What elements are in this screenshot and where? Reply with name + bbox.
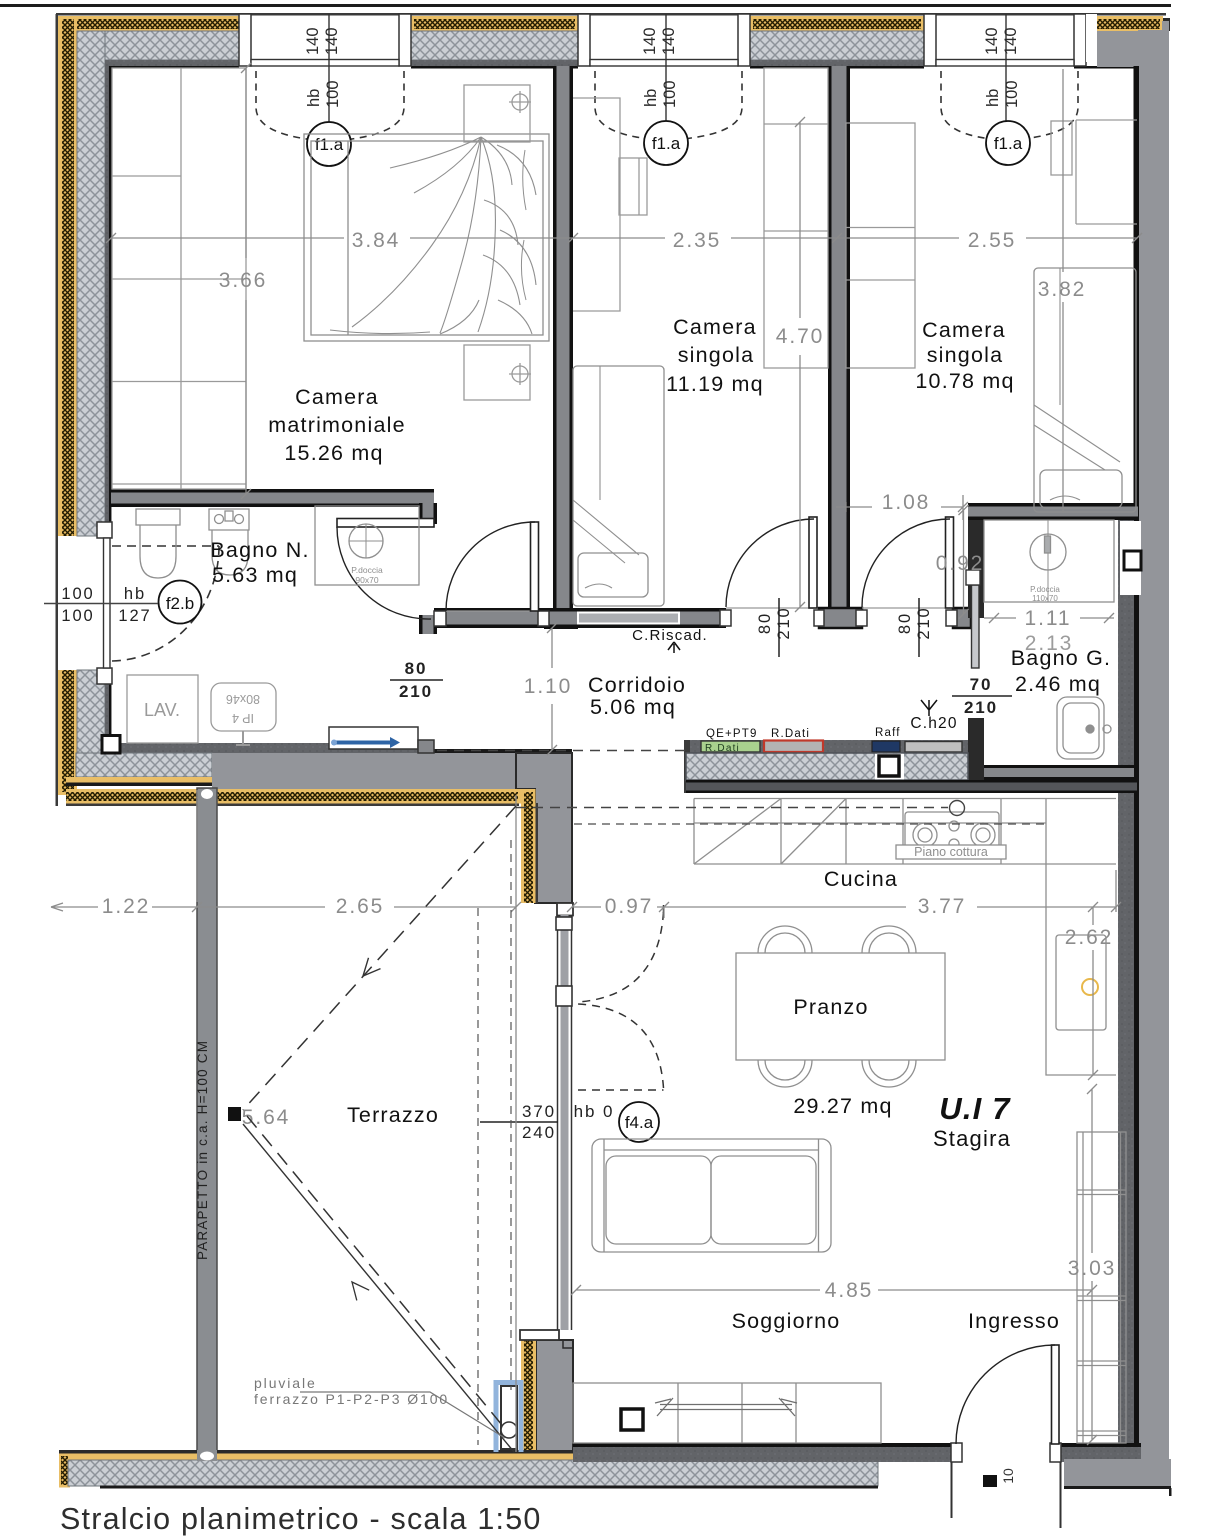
svg-text:1.22: 1.22 <box>102 895 150 918</box>
svg-text:140: 140 <box>983 27 1001 55</box>
svg-text:210: 210 <box>399 682 433 701</box>
svg-text:LAV.: LAV. <box>144 700 180 720</box>
svg-text:2.35: 2.35 <box>673 229 721 252</box>
svg-text:0.92: 0.92 <box>936 552 984 575</box>
svg-text:IP 4: IP 4 <box>232 711 254 725</box>
svg-text:PARAPETTO in c.a. H=100 CM: PARAPETTO in c.a. H=100 CM <box>195 1040 210 1260</box>
svg-text:singola: singola <box>927 343 1004 367</box>
svg-text:210: 210 <box>915 606 933 639</box>
svg-text:Raff: Raff <box>875 727 901 739</box>
svg-text:100: 100 <box>324 80 342 108</box>
svg-text:5.06 mq: 5.06 mq <box>590 695 676 719</box>
svg-text:f1.a: f1.a <box>652 134 681 153</box>
svg-text:240: 240 <box>522 1123 556 1142</box>
svg-text:100: 100 <box>61 585 94 603</box>
svg-text:127: 127 <box>118 607 151 625</box>
svg-text:3.03: 3.03 <box>1068 1257 1116 1280</box>
svg-text:f2.b: f2.b <box>166 594 194 613</box>
svg-text:hb: hb <box>642 89 660 107</box>
svg-text:80: 80 <box>896 612 914 634</box>
svg-text:2.65: 2.65 <box>336 895 384 918</box>
svg-text:15.26 mq: 15.26 mq <box>284 441 383 465</box>
svg-text:3.77: 3.77 <box>918 895 966 918</box>
svg-text:210: 210 <box>775 606 793 639</box>
svg-text:Stralcio planimetrico - scala: Stralcio planimetrico - scala 1:50 <box>60 1502 542 1536</box>
svg-text:3.66: 3.66 <box>219 269 267 292</box>
svg-text:U.I 7: U.I 7 <box>939 1091 1011 1126</box>
svg-text:80x46: 80x46 <box>226 692 260 706</box>
svg-text:hb: hb <box>984 89 1002 107</box>
svg-text:3.82: 3.82 <box>1038 278 1086 301</box>
svg-text:140: 140 <box>323 27 341 55</box>
svg-text:Pranzo: Pranzo <box>793 995 868 1019</box>
svg-text:R.Dati: R.Dati <box>771 728 810 740</box>
svg-text:2.62: 2.62 <box>1065 926 1113 949</box>
svg-text:f1.a: f1.a <box>315 135 344 154</box>
svg-text:f1.a: f1.a <box>994 134 1023 153</box>
svg-text:110x70: 110x70 <box>1032 594 1058 603</box>
svg-text:11.19 mq: 11.19 mq <box>666 372 764 396</box>
svg-text:f4.a: f4.a <box>625 1113 654 1132</box>
svg-text:210: 210 <box>964 698 998 717</box>
svg-text:P.doccia: P.doccia <box>351 565 383 575</box>
svg-text:4.70: 4.70 <box>776 325 824 348</box>
svg-text:Corridoio: Corridoio <box>588 673 686 697</box>
svg-text:0.97: 0.97 <box>605 895 653 918</box>
svg-text:10.78 mq: 10.78 mq <box>915 369 1014 393</box>
svg-text:singola: singola <box>678 343 755 367</box>
svg-text:QE+PT9: QE+PT9 <box>706 728 758 740</box>
svg-text:90x70: 90x70 <box>355 575 378 585</box>
svg-text:10: 10 <box>1000 1468 1016 1484</box>
svg-text:pluviale: pluviale <box>254 1375 317 1391</box>
svg-text:3.84: 3.84 <box>352 229 400 252</box>
svg-text:100: 100 <box>61 607 94 625</box>
svg-text:Piano cottura: Piano cottura <box>914 845 988 859</box>
svg-text:140: 140 <box>304 27 322 55</box>
svg-text:Cucina: Cucina <box>824 867 898 891</box>
svg-text:140: 140 <box>660 27 678 55</box>
svg-text:Bagno N.: Bagno N. <box>210 538 309 562</box>
svg-text:2.46 mq: 2.46 mq <box>1015 672 1101 696</box>
svg-text:80: 80 <box>405 659 428 678</box>
svg-text:Terrazzo: Terrazzo <box>347 1103 439 1127</box>
svg-text:5.63 mq: 5.63 mq <box>212 563 298 587</box>
svg-text:C.h20: C.h20 <box>910 715 957 732</box>
svg-text:4.85: 4.85 <box>825 1279 873 1302</box>
svg-text:Camera: Camera <box>295 385 379 409</box>
svg-text:370: 370 <box>522 1102 556 1121</box>
svg-text:hb: hb <box>124 585 146 603</box>
svg-text:matrimoniale: matrimoniale <box>268 413 405 437</box>
svg-text:100: 100 <box>661 80 679 108</box>
svg-text:80: 80 <box>756 612 774 634</box>
svg-text:ferrazzo P1-P2-P3 Ø100: ferrazzo P1-P2-P3 Ø100 <box>254 1391 449 1407</box>
svg-text:140: 140 <box>1002 27 1020 55</box>
svg-text:Camera: Camera <box>673 315 757 339</box>
svg-text:140: 140 <box>641 27 659 55</box>
svg-text:Soggiorno: Soggiorno <box>732 1309 841 1333</box>
svg-text:2.55: 2.55 <box>968 229 1016 252</box>
svg-text:Camera: Camera <box>922 318 1006 342</box>
svg-text:hb: hb <box>305 89 323 107</box>
svg-text:R.Dati: R.Dati <box>705 743 740 754</box>
svg-text:1.11: 1.11 <box>1025 607 1072 630</box>
svg-text:hb 0: hb 0 <box>574 1102 615 1121</box>
svg-text:70: 70 <box>970 675 993 694</box>
svg-text:P.doccia: P.doccia <box>1030 585 1060 594</box>
svg-text:1.10: 1.10 <box>524 675 572 698</box>
svg-text:C.Riscad.: C.Riscad. <box>632 627 708 644</box>
svg-text:1.08: 1.08 <box>882 491 930 514</box>
svg-text:100: 100 <box>1003 80 1021 108</box>
svg-text:29.27 mq: 29.27 mq <box>793 1094 892 1118</box>
svg-text:Bagno G.: Bagno G. <box>1011 646 1111 670</box>
svg-text:Stagira: Stagira <box>933 1126 1011 1151</box>
svg-text:Ingresso: Ingresso <box>968 1309 1060 1333</box>
